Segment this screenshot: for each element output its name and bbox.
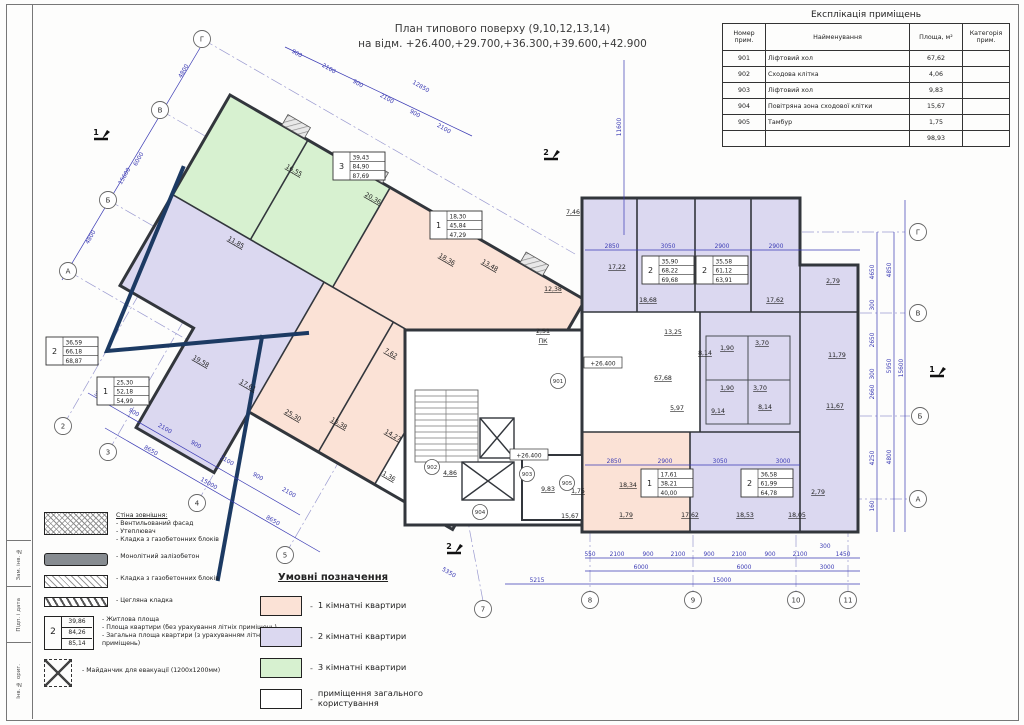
cell <box>963 115 1010 131</box>
symbols-legend-item: -3 кімнатні квартири <box>260 658 480 678</box>
cell <box>723 131 766 147</box>
col-number: Номер прим. <box>723 24 766 51</box>
cell: 902 <box>723 67 766 83</box>
explication-table: Експлікація приміщень Номер прим. Наймен… <box>722 10 1010 147</box>
gasblock-swatch <box>44 575 108 588</box>
title-line2: на відм. +26.400,+29.700,+36.300,+39.600… <box>330 37 675 52</box>
symbol-label: 2 кімнатні квартири <box>318 632 468 642</box>
symbols-legend-item: -приміщення загального користування <box>260 689 480 709</box>
drawing-title: План типового поверху (9,10,12,13,14) на… <box>330 22 675 51</box>
ext-wall-swatch <box>44 512 108 535</box>
symbol-swatch <box>260 627 302 647</box>
cell: 904 <box>723 99 766 115</box>
cell: 4,06 <box>910 67 963 83</box>
apartment-sample-box: 2 39,86 84,26 85,14 <box>44 616 94 649</box>
stamp-column: Зам. інв. № Підп. і дата Інв. № ориг. <box>6 4 33 719</box>
gasblock-label: - Кладка з газобетонних блоків <box>116 575 219 583</box>
concrete-swatch <box>44 553 108 566</box>
cell: 98,93 <box>910 131 963 147</box>
ext-wall-line: - Кладка з газобетонних блоків <box>116 536 219 544</box>
concrete-label: - Монолітний залізобетон <box>116 553 199 561</box>
ext-wall-line: - Вентильований фасад <box>116 520 219 528</box>
ext-wall-line: - Утеплювач <box>116 528 219 536</box>
explication-header-row: Номер прим. Найменування Площа, м² Катег… <box>723 24 1010 51</box>
col-area: Площа, м² <box>910 24 963 51</box>
legend-item-ext-wall: Стіна зовнішня: - Вентильований фасад - … <box>44 512 279 544</box>
col-category: Категорія прим. <box>963 24 1010 51</box>
symbol-label: 1 кімнатні квартири <box>318 601 468 611</box>
legend-item-evacuation: - Майданчик для евакуації (1200х1200мм) <box>44 659 279 687</box>
cell <box>963 67 1010 83</box>
sample-value: 39,86 <box>62 617 92 628</box>
sample-value: 84,26 <box>62 628 92 639</box>
title-line1: План типового поверху (9,10,12,13,14) <box>330 22 675 37</box>
stamp-label: Зам. інв. № <box>16 548 22 580</box>
brick-label: - Цегляна кладка <box>116 597 173 605</box>
explication-row: 901Ліфтовий хол67,62 <box>723 51 1010 67</box>
cell: 15,67 <box>910 99 963 115</box>
sample-label: - Загальна площа квартири (з урахуванням… <box>102 632 279 648</box>
cell: Тамбур <box>766 115 910 131</box>
legend-item-apartment-sample: 2 39,86 84,26 85,14 - Житлова площа - Пл… <box>44 616 279 649</box>
stamp-label: Підп. і дата <box>16 598 22 632</box>
cell <box>766 131 910 147</box>
col-name: Найменування <box>766 24 910 51</box>
explication-title: Експлікація приміщень <box>722 10 1010 20</box>
dash: - <box>310 602 313 611</box>
sample-number: 2 <box>45 617 62 648</box>
cell: 9,83 <box>910 83 963 99</box>
cell: 905 <box>723 115 766 131</box>
cell <box>963 83 1010 99</box>
cell: 903 <box>723 83 766 99</box>
cell: 1,75 <box>910 115 963 131</box>
stamp-cell: Підп. і дата <box>6 586 31 643</box>
cell: Ліфтовий хол <box>766 51 910 67</box>
dash: - <box>310 695 313 704</box>
cell: 67,62 <box>910 51 963 67</box>
symbol-swatch <box>260 689 302 709</box>
ext-wall-header: Стіна зовнішня: <box>116 512 219 520</box>
evacuation-swatch <box>44 659 72 687</box>
legend-item-brick: - Цегляна кладка <box>44 597 279 607</box>
explication-row: 902Сходова клітка4,06 <box>723 67 1010 83</box>
symbol-swatch <box>260 596 302 616</box>
cell <box>963 99 1010 115</box>
stamp-cell: Інв. № ориг. <box>6 642 31 720</box>
walls-legend: Стіна зовнішня: - Вентильований фасад - … <box>44 512 279 696</box>
explication-row: 903Ліфтовий хол9,83 <box>723 83 1010 99</box>
dash: - <box>310 633 313 642</box>
explication-total-row: 98,93 <box>723 131 1010 147</box>
cell <box>963 51 1010 67</box>
brick-swatch <box>44 597 108 607</box>
symbols-legend-item: -2 кімнатні квартири <box>260 627 480 647</box>
dash: - <box>310 664 313 673</box>
stamp-cell: Зам. інв. № <box>6 540 31 587</box>
symbol-label: приміщення загального користування <box>318 689 468 709</box>
symbols-legend-item: -1 кімнатні квартири <box>260 596 480 616</box>
cell: Ліфтовий хол <box>766 83 910 99</box>
explication-row: 905Тамбур1,75 <box>723 115 1010 131</box>
explication-row: 904Повітряна зона сходової клітки15,67 <box>723 99 1010 115</box>
symbol-swatch <box>260 658 302 678</box>
stamp-label: Інв. № ориг. <box>16 664 22 699</box>
cell: 901 <box>723 51 766 67</box>
evacuation-label: - Майданчик для евакуації (1200х1200мм) <box>82 667 220 675</box>
symbols-legend-title: Умовні позначення <box>278 572 388 583</box>
symbols-legend: -1 кімнатні квартири-2 кімнатні квартири… <box>260 596 480 720</box>
cell: Повітряна зона сходової клітки <box>766 99 910 115</box>
cell: Сходова клітка <box>766 67 910 83</box>
cell <box>963 131 1010 147</box>
legend-item-concrete: - Монолітний залізобетон <box>44 553 279 566</box>
legend-item-gasblock: - Кладка з газобетонних блоків <box>44 575 279 588</box>
sample-value: 85,14 <box>62 639 92 649</box>
symbol-label: 3 кімнатні квартири <box>318 663 468 673</box>
